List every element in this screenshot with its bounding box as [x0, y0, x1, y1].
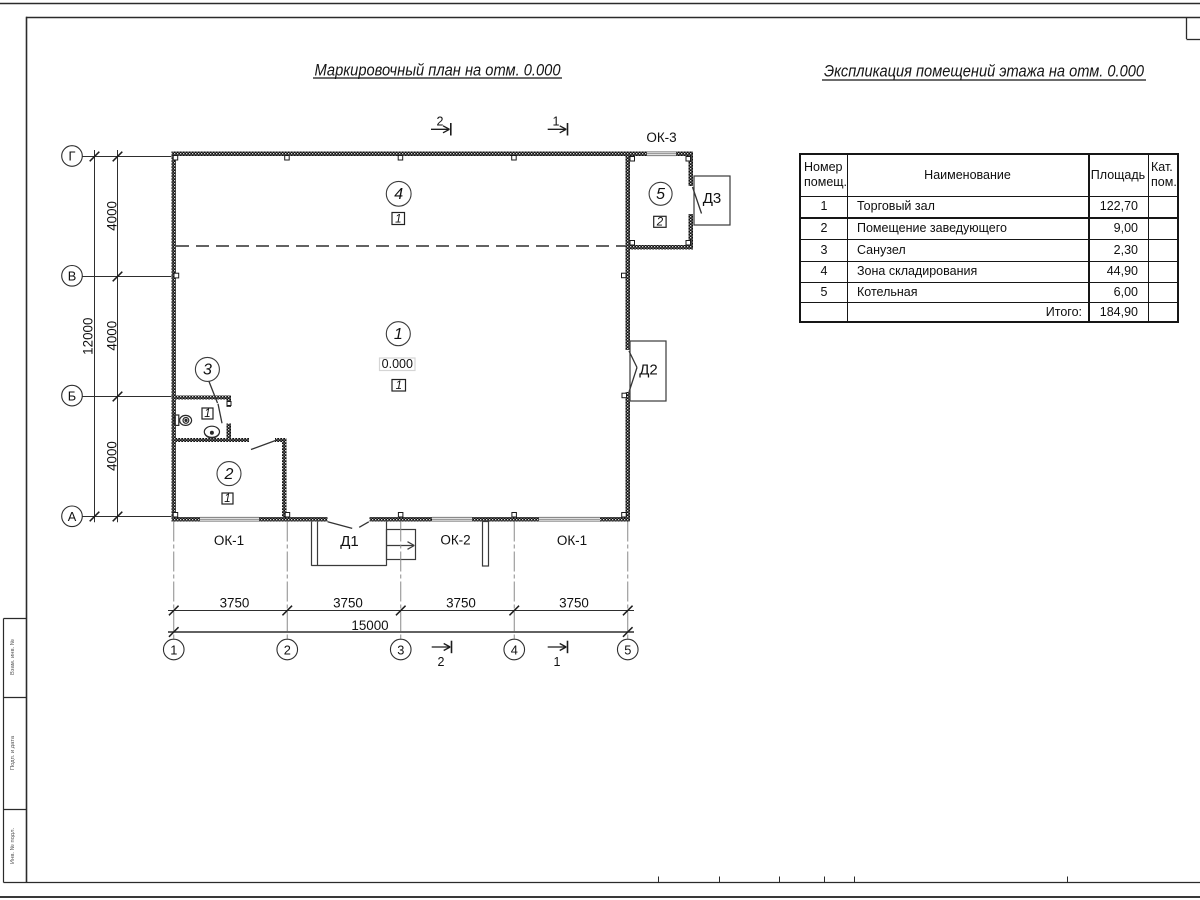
svg-text:15000: 15000	[351, 618, 388, 633]
svg-text:4000: 4000	[104, 321, 119, 351]
svg-text:Маркировочный план на отм. 0.0: Маркировочный план на отм. 0.000	[315, 62, 561, 80]
svg-text:1: 1	[204, 408, 210, 420]
svg-text:4: 4	[394, 186, 403, 203]
svg-text:2: 2	[224, 466, 234, 483]
svg-text:Д2: Д2	[639, 362, 658, 379]
svg-text:1: 1	[395, 214, 401, 226]
svg-text:0.000: 0.000	[382, 357, 413, 371]
svg-text:1: 1	[553, 115, 560, 129]
svg-text:1: 1	[394, 326, 403, 343]
svg-text:4: 4	[511, 642, 518, 657]
svg-text:А: А	[68, 509, 77, 524]
svg-text:ОК-1: ОК-1	[214, 533, 244, 548]
svg-text:Г: Г	[69, 149, 76, 164]
svg-text:Экспликация помещений этажа на: Экспликация помещений этажа на отм. 0.00…	[824, 63, 1144, 81]
svg-text:ОК-2: ОК-2	[440, 533, 470, 548]
svg-text:3750: 3750	[220, 596, 250, 611]
svg-text:2: 2	[656, 217, 664, 229]
svg-text:5: 5	[656, 186, 665, 203]
svg-text:2: 2	[284, 642, 291, 657]
svg-text:Д1: Д1	[340, 533, 359, 550]
svg-text:Д3: Д3	[703, 190, 722, 207]
svg-text:1: 1	[554, 655, 561, 669]
svg-text:4000: 4000	[104, 201, 119, 231]
svg-text:12000: 12000	[81, 318, 96, 355]
svg-text:1: 1	[170, 642, 177, 657]
svg-text:3750: 3750	[559, 596, 589, 611]
svg-text:3: 3	[203, 362, 212, 379]
svg-text:Инв. № подл.: Инв. № подл.	[10, 828, 16, 864]
svg-text:ОК-1: ОК-1	[557, 533, 587, 548]
svg-text:1: 1	[396, 380, 402, 392]
svg-text:Б: Б	[68, 388, 76, 403]
svg-text:5: 5	[624, 642, 631, 657]
svg-text:1: 1	[224, 493, 230, 505]
svg-text:3: 3	[397, 642, 404, 657]
svg-text:3750: 3750	[446, 596, 476, 611]
svg-text:ОК-3: ОК-3	[646, 130, 676, 145]
svg-text:3750: 3750	[333, 596, 363, 611]
svg-text:4000: 4000	[104, 441, 119, 471]
svg-text:Взам. инв. №: Взам. инв. №	[10, 639, 16, 675]
svg-text:2: 2	[437, 115, 444, 129]
svg-text:2: 2	[438, 655, 445, 669]
svg-text:Подп. и дата: Подп. и дата	[10, 735, 16, 770]
svg-text:В: В	[68, 269, 77, 284]
